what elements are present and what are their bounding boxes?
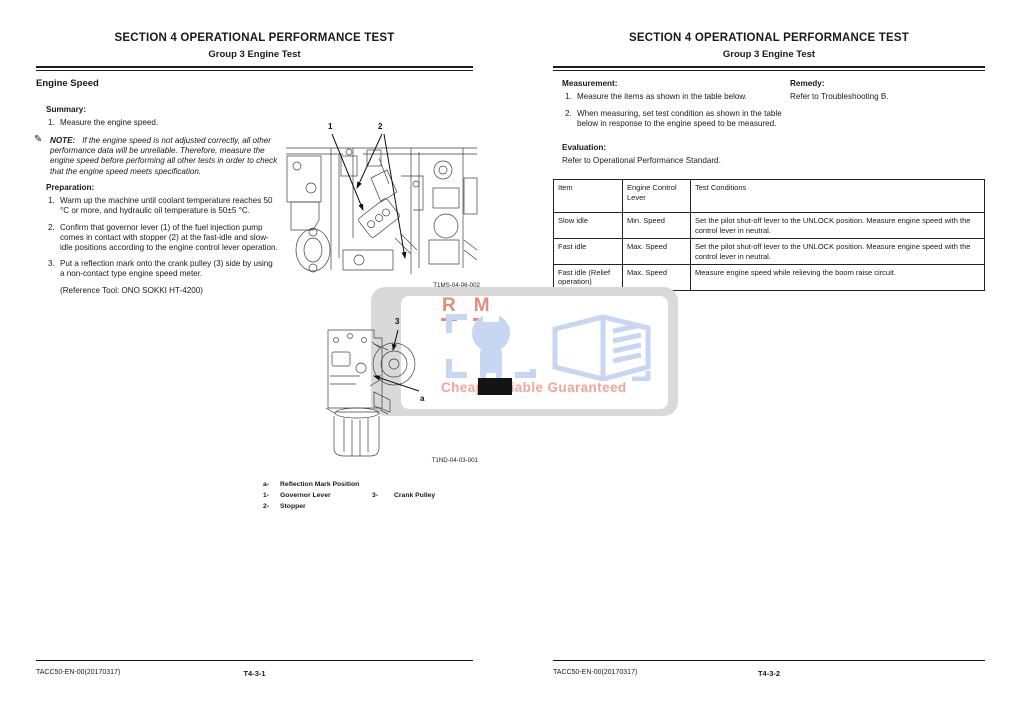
right-section-title: SECTION 4 OPERATIONAL PERFORMANCE TEST — [553, 32, 985, 44]
left-page-header: SECTION 4 OPERATIONAL PERFORMANCE TEST G… — [36, 32, 473, 71]
table-header-row: Item Engine Control Lever Test Condition… — [554, 180, 985, 213]
left-group-subtitle: Group 3 Engine Test — [36, 49, 473, 60]
remedy-text: Refer to Troubleshooting B. — [790, 92, 985, 102]
prep-item-text: Warm up the machine until coolant temper… — [60, 196, 278, 216]
right-page-header: SECTION 4 OPERATIONAL PERFORMANCE TEST G… — [553, 32, 985, 71]
legend-key: 1- — [263, 492, 280, 499]
table-row: Slow idle Min. Speed Set the pilot shut-… — [554, 213, 985, 239]
prep-item-number: 3. — [48, 259, 60, 279]
summary-label: Summary: — [46, 105, 278, 115]
figure1-caption: T1MS-04-06-002 — [400, 282, 480, 289]
left-text-column: Summary: 1. Measure the engine speed. ✎ … — [36, 105, 278, 296]
measurement-item-number: 2. — [565, 109, 577, 129]
figure-crank-pulley-diagram: 3 a — [316, 312, 436, 462]
legend-label: Crank Pulley — [394, 492, 435, 499]
legend-row-1-3: 1-Governor Lever 3-Crank Pulley — [263, 492, 493, 499]
prep-item-text: Confirm that governor lever (1) of the f… — [60, 223, 278, 254]
measurement-item-text: Measure the items as shown in the table … — [577, 92, 790, 102]
note-text-wrap: NOTE:If the engine speed is not adjusted… — [50, 136, 278, 177]
topic-heading: Engine Speed — [36, 78, 99, 89]
col-header-engine-control-lever: Engine Control Lever — [623, 180, 691, 213]
left-section-title: SECTION 4 OPERATIONAL PERFORMANCE TEST — [36, 32, 473, 44]
cell-conditions: Measure engine speed while relieving the… — [691, 264, 985, 290]
legend-key: 3- — [372, 492, 394, 499]
legend-key: 2- — [263, 503, 280, 510]
figure-engine-governor-diagram: 1 2 — [283, 118, 480, 283]
cell-item: Slow idle — [554, 213, 623, 239]
legend-row-a: a-Reflection Mark Position — [263, 481, 493, 488]
measurement-item: 2. When measuring, set test condition as… — [565, 109, 783, 129]
note-block: ✎ NOTE:If the engine speed is not adjust… — [36, 136, 278, 177]
prep-item-number: 2. — [48, 223, 60, 254]
note-text: If the engine speed is not adjusted corr… — [50, 136, 277, 176]
legend-key: a- — [263, 481, 280, 488]
evaluation-text: Refer to Operational Performance Standar… — [562, 156, 985, 166]
legend-label: Stopper — [280, 503, 306, 510]
callout-1-label: 1 — [328, 122, 333, 131]
cell-conditions: Set the pilot shut-off lever to the UNLO… — [691, 239, 985, 265]
left-footer-page-number: T4-3-1 — [36, 669, 473, 678]
watermark-black-box — [478, 378, 512, 395]
remedy-label: Remedy: — [790, 79, 985, 89]
note-label: NOTE: — [50, 136, 75, 145]
preparation-item: 3. Put a reflection mark onto the crank … — [48, 259, 278, 279]
right-text-column: Measurement: 1. Measure the items as sho… — [553, 79, 985, 291]
watermark-tagline: Cheap Reliable Guaranteed — [441, 380, 627, 395]
summary-item-text: Measure the engine speed. — [60, 118, 278, 128]
col-header-test-conditions: Test Conditions — [691, 180, 985, 213]
evaluation-label: Evaluation: — [562, 143, 985, 153]
remedy-column: Remedy: Refer to Troubleshooting B. — [790, 79, 985, 135]
cell-item: Fast idle — [554, 239, 623, 265]
cell-lever: Max. Speed — [623, 239, 691, 265]
left-header-rule — [36, 66, 473, 71]
measurement-item: 1. Measure the items as shown in the tab… — [565, 92, 790, 102]
measurement-column: Measurement: 1. Measure the items as sho… — [553, 79, 790, 135]
summary-item: 1. Measure the engine speed. — [48, 118, 278, 128]
col-header-item: Item — [554, 180, 623, 213]
legend-label: Governor Lever — [280, 492, 331, 499]
measurement-item-text: When measuring, set test condition as sh… — [577, 109, 783, 129]
figure-legend: a-Reflection Mark Position 1-Governor Le… — [263, 481, 493, 514]
right-header-rule — [553, 66, 985, 71]
right-footer-page-number: T4-3-2 — [553, 669, 985, 678]
legend-row-2: 2-Stopper — [263, 503, 493, 510]
test-conditions-table: Item Engine Control Lever Test Condition… — [553, 179, 985, 290]
measurement-remedy-row: Measurement: 1. Measure the items as sho… — [553, 79, 985, 135]
callout-3-label: 3 — [395, 317, 400, 326]
table-row: Fast idle Max. Speed Set the pilot shut-… — [554, 239, 985, 265]
figure2-caption: T1ND-04-03-001 — [398, 457, 478, 464]
cell-conditions: Set the pilot shut-off lever to the UNLO… — [691, 213, 985, 239]
preparation-item: 2. Confirm that governor lever (1) of th… — [48, 223, 278, 254]
preparation-item: 1. Warm up the machine until coolant tem… — [48, 196, 278, 216]
callout-a-label: a — [420, 394, 425, 403]
right-group-subtitle: Group 3 Engine Test — [553, 49, 985, 60]
measurement-label: Measurement: — [562, 79, 790, 89]
callout-2-label: 2 — [378, 122, 383, 131]
legend-pair-3: 3-Crank Pulley — [372, 492, 435, 499]
pencil-note-icon: ✎ — [34, 134, 42, 147]
right-footer-rule — [553, 660, 985, 661]
prep-item-number: 1. — [48, 196, 60, 216]
reference-tool-text: (Reference Tool: ONO SOKKI HT-4200) — [60, 286, 278, 296]
measurement-item-number: 1. — [565, 92, 577, 102]
manual-two-page-spread: RM Cheap Reliable Guaranteed — [0, 0, 1025, 722]
cell-lever: Min. Speed — [623, 213, 691, 239]
left-footer-rule — [36, 660, 473, 661]
wrench-and-book-icon — [443, 311, 658, 381]
preparation-label: Preparation: — [46, 183, 278, 193]
summary-item-number: 1. — [48, 118, 60, 128]
prep-item-text: Put a reflection mark onto the crank pul… — [60, 259, 278, 279]
legend-label: Reflection Mark Position — [280, 481, 359, 488]
